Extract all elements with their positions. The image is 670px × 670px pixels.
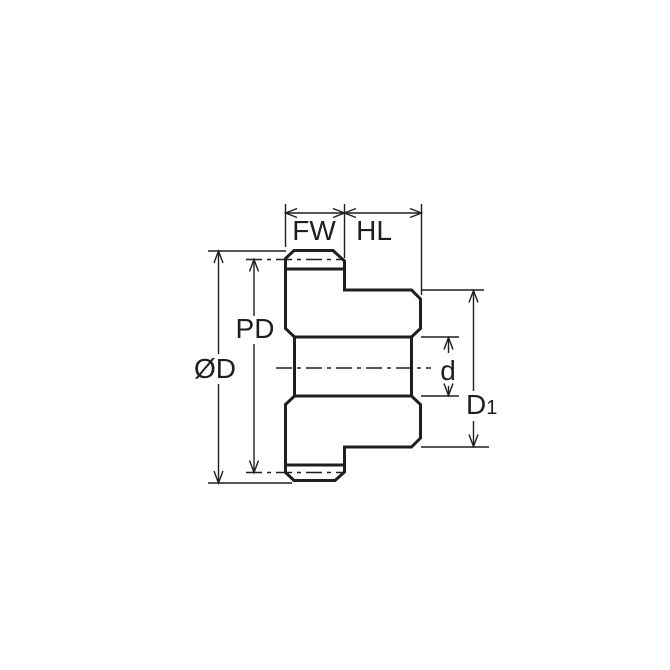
gear-dimension-diagram: FW HL PD ØD d D1 (0, 0, 670, 670)
label-hub-length: HL (356, 215, 392, 246)
dimension-labels: FW HL PD ØD d D1 (194, 215, 497, 420)
gear-body (286, 251, 421, 481)
gear-lower-section-fill (286, 396, 421, 465)
label-hub-diameter-main: D (466, 389, 486, 420)
dimension-lines (214, 209, 478, 484)
label-face-width: FW (292, 215, 336, 246)
gear-upper-section-fill (286, 269, 421, 337)
label-hub-diameter-subscript: 1 (486, 397, 497, 419)
label-bore-diameter: d (440, 355, 456, 386)
gear-drawing-canvas: FW HL PD ØD d D1 (0, 0, 670, 670)
label-hub-diameter: D1 (466, 389, 497, 420)
label-outside-diameter: ØD (194, 353, 236, 384)
label-pitch-diameter: PD (236, 313, 275, 344)
